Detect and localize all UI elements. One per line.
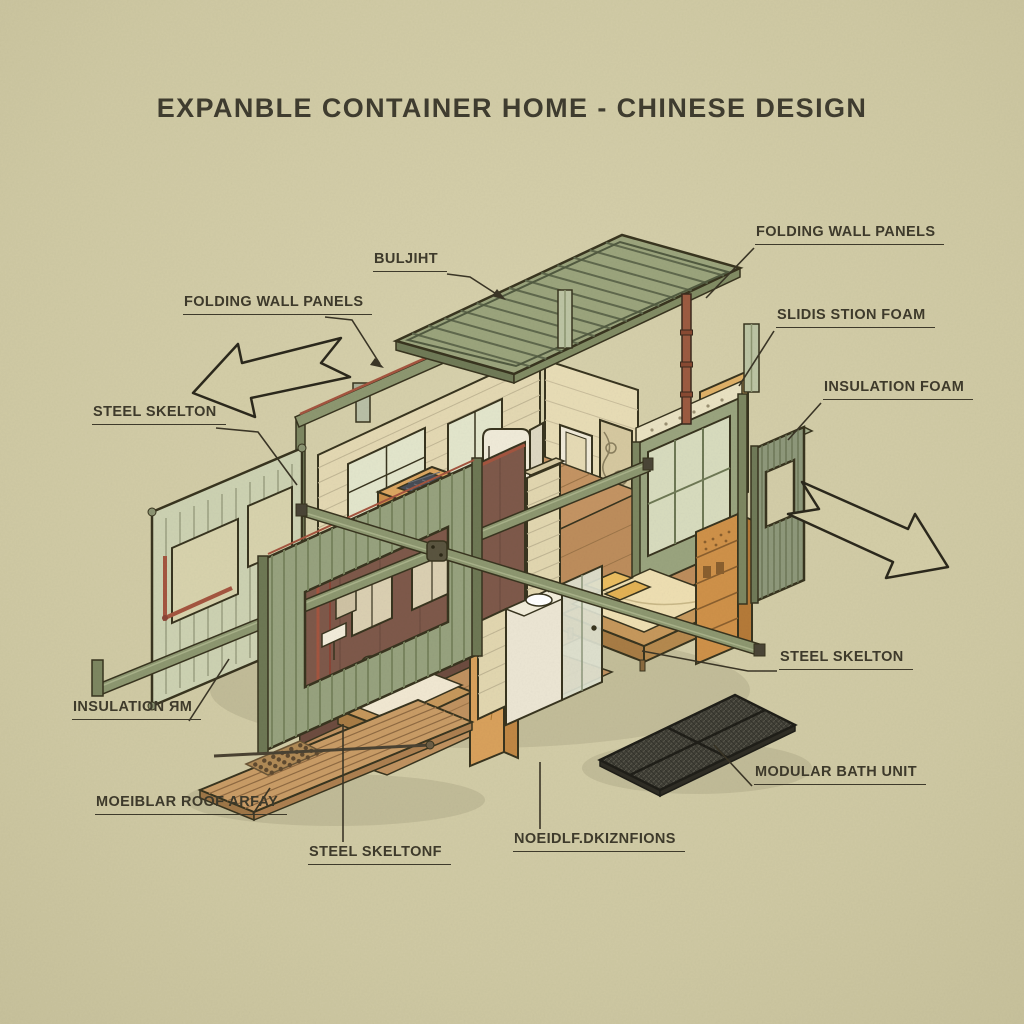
beam-junction-connector [427,541,447,561]
isometric-illustration [0,0,1024,1024]
label-steel-skelton-right: STEEL SKELTON [779,649,913,670]
diagram-canvas: EXPANBLE CONTAINER HOME - CHINESE DESIGN… [0,0,1024,1024]
label-buljiht: BULJIHT [373,251,447,272]
page-title: EXPANBLE CONTAINER HOME - CHINESE DESIGN [0,94,1024,124]
label-folding-wall-panels-right: FOLDING WALL PANELS [755,224,944,245]
label-insulation-foam: INSULATION FOAM [823,379,973,400]
label-modular-bath-unit: MODULAR BATH UNIT [754,764,926,785]
label-steel-skeltonf: STEEL SKELTONF [308,844,451,865]
copper-riser-pipe [681,294,693,424]
right-corner-post [738,394,747,604]
label-insulation-rm: INSULATION ЯM [72,699,201,720]
label-noeioli-dikonions: NOEIDLF.DKIZNFIONS [513,831,685,852]
label-folding-wall-panels-left: FOLDING WALL PANELS [183,294,372,315]
label-steel-skelton-left: STEEL SKELTON [92,404,226,425]
expansion-arrow-right [788,482,948,578]
label-moeiblar-roof-array: MOEIBLAR ROOF ARFAY [95,794,287,815]
label-slidis-stion-foam: SLIDIS STION FOAM [776,307,935,328]
